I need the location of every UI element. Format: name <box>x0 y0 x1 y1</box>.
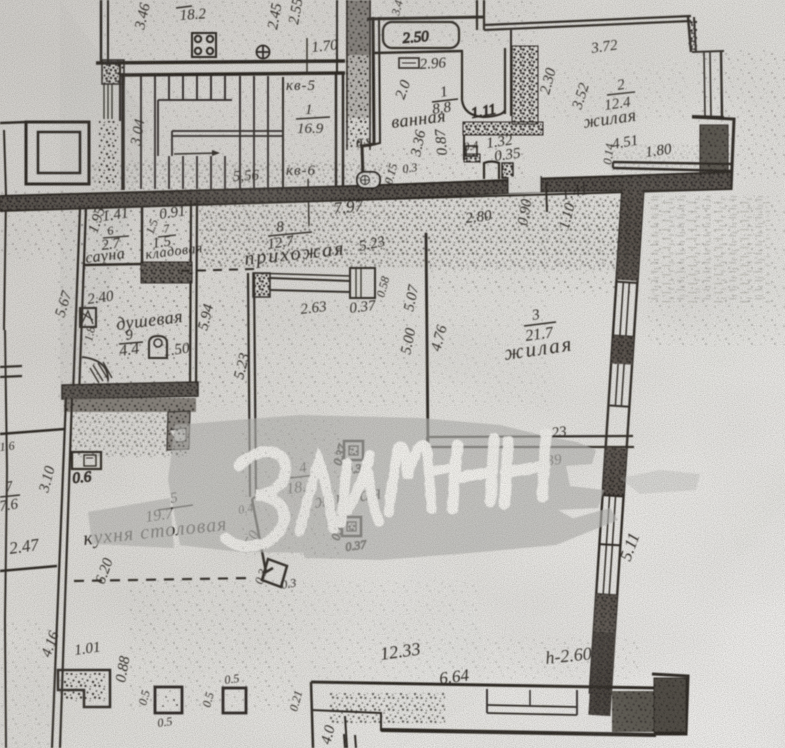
svg-text:7.6: 7.6 <box>0 496 20 515</box>
svg-text:1.6: 1.6 <box>0 438 15 453</box>
svg-text:2.96: 2.96 <box>419 55 447 73</box>
svg-text:0.5: 0.5 <box>156 714 173 730</box>
svg-text:0.6: 0.6 <box>72 469 93 487</box>
